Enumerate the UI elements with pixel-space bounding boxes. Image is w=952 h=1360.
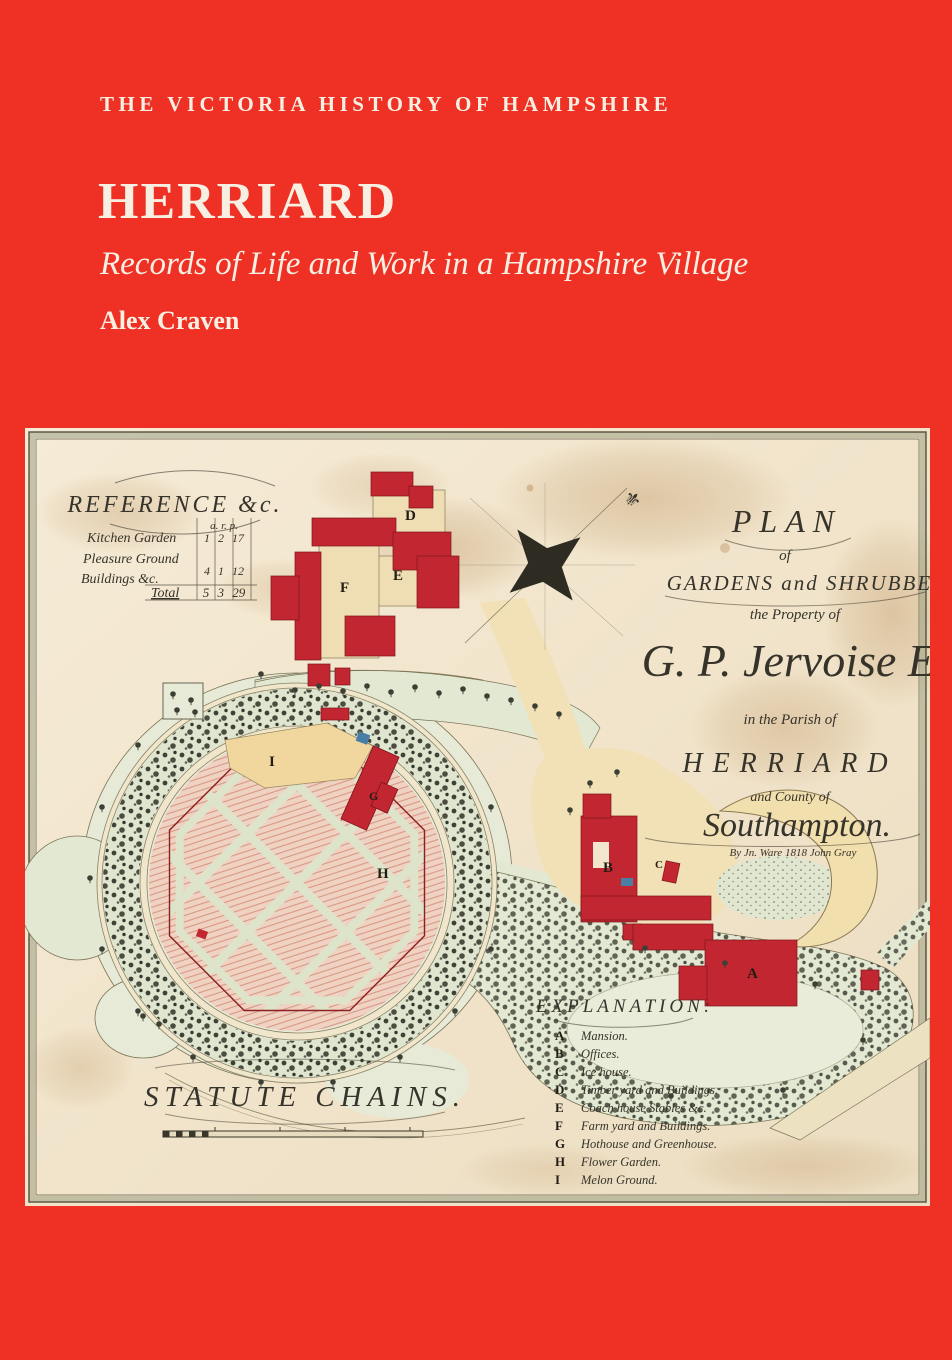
legend-label: Coach house Stables &c. bbox=[581, 1101, 707, 1115]
label-hothouse: G bbox=[369, 789, 378, 803]
legend-label: Hothouse and Greenhouse. bbox=[580, 1137, 717, 1151]
book-title: HERRIARD bbox=[98, 172, 397, 231]
legend-label: Farm yard and Buildings. bbox=[580, 1119, 710, 1133]
reference-row-value: 4 1 12 bbox=[204, 564, 244, 578]
series-title: THE VICTORIA HISTORY OF HAMPSHIRE bbox=[100, 92, 672, 117]
legend-label: Melon Ground. bbox=[580, 1173, 658, 1187]
book-subtitle: Records of Life and Work in a Hampshire … bbox=[100, 246, 748, 283]
label-timber-yard: D bbox=[405, 508, 416, 524]
reference-row-value: 1 2 17 bbox=[204, 531, 245, 545]
reference-row-label: Pleasure Ground bbox=[82, 552, 180, 567]
legend-letter: B bbox=[555, 1046, 564, 1061]
label-flower-garden: H bbox=[377, 866, 389, 882]
label-icehouse: C bbox=[655, 859, 663, 871]
map-title-herriard: HERRIARD bbox=[681, 748, 897, 779]
legend-letter: A bbox=[555, 1028, 565, 1043]
legend-label: Timber yard and Buildings. bbox=[581, 1083, 718, 1097]
map-title-southampton: Southampton. bbox=[703, 807, 891, 844]
legend-letter: G bbox=[555, 1136, 565, 1151]
legend-letter: C bbox=[555, 1064, 564, 1079]
map-title-gardens: GARDENS and SHRUBBERIES bbox=[667, 571, 930, 595]
legend-letter: F bbox=[555, 1118, 563, 1133]
label-coach-house: E bbox=[393, 568, 403, 584]
scale-label: STATUTE CHAINS. bbox=[144, 1081, 466, 1113]
map-title-county: and County of bbox=[750, 790, 831, 805]
map-title-plan: PLAN bbox=[731, 503, 842, 539]
reference-total-label: Total bbox=[151, 586, 179, 601]
map-title-owner: G. P. Jervoise Esq. bbox=[642, 635, 930, 686]
map-title-surveyor: By Jn. Ware 1818 John Gray bbox=[730, 847, 857, 859]
map-title-of: of bbox=[779, 548, 793, 564]
legend-label: Ice house. bbox=[580, 1065, 632, 1079]
label-farm-yard: F bbox=[340, 580, 349, 596]
author-name: Alex Craven bbox=[100, 306, 239, 336]
map-title-parish: in the Parish of bbox=[744, 712, 839, 728]
cover-map-image: ⚜ REFERENCE &c. a. r. p. Kitchen Garden … bbox=[25, 428, 930, 1206]
label-offices: B bbox=[603, 860, 613, 876]
legend-label: Flower Garden. bbox=[580, 1155, 661, 1169]
garden-plan-svg: ⚜ REFERENCE &c. a. r. p. Kitchen Garden … bbox=[25, 428, 930, 1206]
reference-row-label: Kitchen Garden bbox=[86, 531, 176, 546]
legend-letter: H bbox=[555, 1154, 565, 1169]
legend-letter: D bbox=[555, 1082, 564, 1097]
legend-letter: I bbox=[555, 1172, 560, 1187]
legend-letter: E bbox=[555, 1100, 564, 1115]
explanation-heading: EXPLANATION: bbox=[535, 996, 714, 1017]
legend-label: Offices. bbox=[581, 1047, 620, 1061]
legend-label: Mansion. bbox=[580, 1029, 628, 1043]
reference-heading: REFERENCE &c. bbox=[67, 492, 283, 518]
label-mansion: A bbox=[747, 966, 758, 982]
reference-total-value: 5 3 29 bbox=[203, 585, 246, 600]
book-cover: THE VICTORIA HISTORY OF HAMPSHIRE HERRIA… bbox=[0, 0, 952, 1360]
reference-row-label: Buildings &c. bbox=[81, 572, 159, 587]
map-title-property: the Property of bbox=[750, 607, 842, 623]
label-melon-ground: I bbox=[269, 754, 275, 770]
